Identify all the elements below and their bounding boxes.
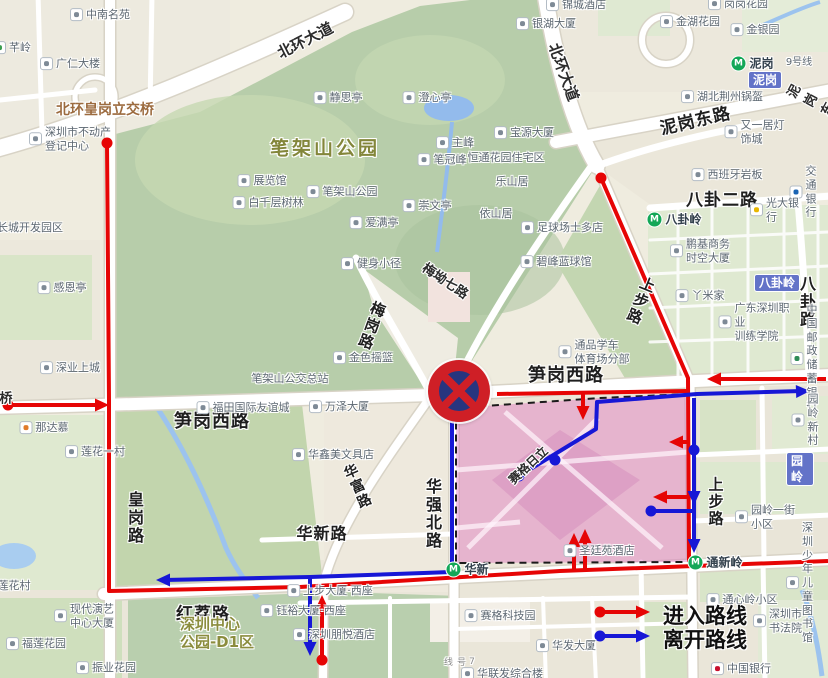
base-map <box>0 0 828 678</box>
legend-leave-label: 离开路线 <box>663 624 747 654</box>
no-entry-sign <box>428 360 490 422</box>
map-canvas[interactable]: 中南名苑芊岭广仁大楼北环皇岗立交桥深圳市不动产 登记中心长城开发园区笔架山公园静… <box>0 0 828 678</box>
